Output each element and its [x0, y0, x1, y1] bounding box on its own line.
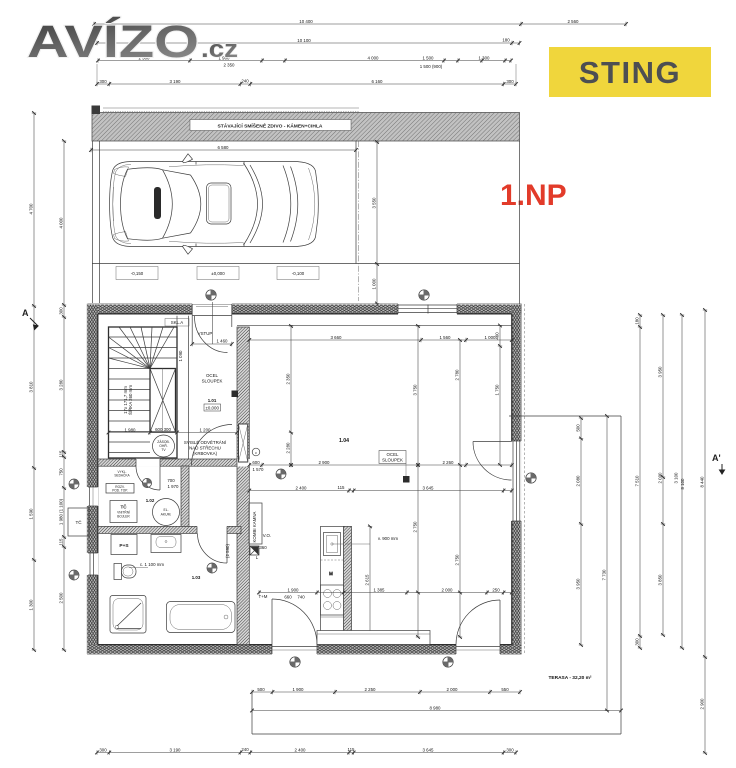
- svg-text:1 590: 1 590: [29, 508, 34, 520]
- svg-text:2 560: 2 560: [568, 19, 580, 24]
- svg-text:TERASA - 32,20 m²: TERASA - 32,20 m²: [548, 675, 591, 681]
- svg-text:SVISLÉ ODVĚTRÁNÍ: SVISLÉ ODVĚTRÁNÍ: [184, 440, 227, 445]
- svg-text:1 300: 1 300: [29, 599, 34, 611]
- svg-text:3 190: 3 190: [170, 747, 182, 752]
- svg-text:POD. TOP.: POD. TOP.: [112, 489, 128, 493]
- svg-text:V.O.: V.O.: [263, 533, 271, 538]
- svg-text:2 400: 2 400: [295, 747, 307, 752]
- svg-text:300: 300: [506, 79, 514, 84]
- svg-text:±0,000: ±0,000: [211, 271, 225, 276]
- svg-text:M: M: [329, 571, 333, 576]
- svg-text:1.NP: 1.NP: [500, 179, 567, 212]
- svg-text:ŠÍŘKA 260 mm: ŠÍŘKA 260 mm: [128, 385, 133, 415]
- svg-text:TV: TV: [161, 448, 166, 452]
- svg-text:-0,150: -0,150: [131, 271, 144, 276]
- svg-text:2 900: 2 900: [319, 460, 331, 465]
- svg-text:3 190: 3 190: [170, 79, 182, 84]
- svg-text:3 810: 3 810: [29, 381, 34, 393]
- svg-text:600 300: 600 300: [155, 427, 171, 432]
- svg-text:6 580: 6 580: [218, 145, 230, 150]
- svg-text:2 250: 2 250: [365, 687, 377, 692]
- svg-text:550: 550: [501, 687, 509, 692]
- svg-text:500: 500: [575, 424, 580, 432]
- svg-text:1 980: 1 980: [125, 427, 137, 432]
- svg-text:SLOUPEK: SLOUPEK: [202, 379, 223, 384]
- svg-text:1 460: 1 460: [217, 338, 229, 343]
- svg-text:1 300: 1 300: [479, 55, 491, 60]
- svg-text:600: 600: [252, 460, 260, 465]
- svg-text:1 970: 1 970: [168, 484, 180, 489]
- svg-text:1 750: 1 750: [494, 384, 499, 396]
- svg-text:3 750: 3 750: [412, 384, 417, 396]
- svg-text:1 090: 1 090: [178, 350, 183, 362]
- svg-text:8 980: 8 980: [430, 705, 442, 710]
- svg-text:SEDAČKA: SEDAČKA: [114, 473, 130, 478]
- svg-text:P+S: P+S: [119, 543, 129, 549]
- svg-text:2 400: 2 400: [296, 485, 308, 490]
- svg-text:10 400: 10 400: [299, 19, 313, 24]
- svg-text:240: 240: [241, 79, 249, 84]
- svg-text:460: 460: [494, 332, 499, 340]
- svg-text:1 900: 1 900: [293, 687, 305, 692]
- svg-text:700: 700: [167, 478, 175, 483]
- svg-text:2 000: 2 000: [442, 587, 454, 592]
- svg-text:TČ: TČ: [120, 504, 127, 510]
- svg-text:1 000: 1 000: [372, 278, 377, 290]
- svg-text:c: c: [255, 451, 257, 455]
- svg-text:2 260: 2 260: [443, 460, 455, 465]
- svg-text:OCEL: OCEL: [387, 452, 400, 457]
- svg-text:8 440: 8 440: [699, 476, 704, 488]
- svg-text:±0,000: ±0,000: [205, 405, 219, 410]
- svg-text:1 500: 1 500: [423, 55, 435, 60]
- svg-text:3 550: 3 550: [372, 197, 377, 209]
- svg-text:TČ: TČ: [75, 519, 82, 525]
- svg-text:NAD STŘECHU: NAD STŘECHU: [189, 446, 221, 451]
- svg-text:1.02: 1.02: [146, 498, 155, 503]
- svg-text:7 510: 7 510: [634, 475, 639, 487]
- svg-text:1 900: 1 900: [288, 587, 300, 592]
- svg-text:1 500 (900): 1 500 (900): [420, 64, 443, 69]
- svg-text:OCEL: OCEL: [206, 373, 219, 378]
- svg-text:3 660: 3 660: [331, 335, 343, 340]
- svg-text:3 100: 3 100: [674, 472, 679, 484]
- svg-text:115: 115: [348, 747, 356, 752]
- svg-text:740: 740: [297, 595, 305, 600]
- svg-text:3 280: 3 280: [59, 379, 64, 391]
- svg-text:AKUM.: AKUM.: [161, 513, 172, 517]
- svg-text:250: 250: [492, 587, 500, 592]
- svg-text:180: 180: [634, 317, 639, 325]
- svg-text:750: 750: [59, 468, 64, 476]
- svg-text:2 080: 2 080: [575, 475, 580, 487]
- svg-text:SKL.A: SKL.A: [171, 320, 184, 325]
- svg-text:1.01: 1.01: [208, 398, 217, 403]
- svg-text:240: 240: [241, 747, 249, 752]
- svg-text:4 000: 4 000: [368, 55, 380, 60]
- svg-text:4 700: 4 700: [29, 203, 34, 215]
- svg-text:3 950: 3 950: [575, 578, 580, 590]
- svg-text:300: 300: [634, 638, 639, 646]
- svg-text:(2 590): (2 590): [225, 544, 230, 558]
- svg-text:660: 660: [284, 595, 292, 600]
- svg-text:1 570: 1 570: [253, 467, 265, 472]
- svg-text:300: 300: [59, 307, 64, 315]
- svg-text:300: 300: [506, 747, 514, 752]
- svg-text:2 090: 2 090: [657, 472, 662, 484]
- svg-text:3 645: 3 645: [423, 747, 435, 752]
- svg-text:2 350: 2 350: [224, 63, 236, 68]
- svg-text:c. 1 100 mm: c. 1 100 mm: [140, 562, 164, 567]
- svg-text:2 750: 2 750: [454, 554, 459, 566]
- svg-text:A: A: [22, 308, 29, 318]
- svg-text:v. 900 mm: v. 900 mm: [378, 536, 399, 541]
- svg-text:2 750: 2 750: [412, 521, 417, 533]
- svg-text:115: 115: [338, 485, 346, 490]
- svg-text:2 780: 2 780: [454, 369, 459, 381]
- svg-text:2 350: 2 350: [286, 373, 291, 385]
- svg-text:360: 360: [259, 545, 267, 550]
- svg-text:1.04: 1.04: [339, 438, 349, 444]
- svg-text:T+M: T+M: [259, 594, 268, 599]
- svg-text:4 000: 4 000: [59, 217, 64, 229]
- svg-text:300: 300: [99, 747, 107, 752]
- svg-text:6 160: 6 160: [372, 79, 384, 84]
- svg-text:AVÍZO: AVÍZO: [27, 16, 199, 67]
- svg-text:7 730: 7 730: [601, 569, 606, 581]
- svg-text:115: 115: [59, 450, 64, 458]
- svg-text:EL.: EL.: [163, 508, 168, 512]
- svg-text:2 000: 2 000: [447, 687, 459, 692]
- svg-text:1 200: 1 200: [200, 427, 212, 432]
- svg-text:3 645: 3 645: [423, 485, 435, 490]
- svg-text:1 980 (1 100): 1 980 (1 100): [59, 498, 64, 525]
- svg-text:2 615: 2 615: [364, 574, 369, 586]
- svg-text:KOMBI KAMNA: KOMBI KAMNA: [252, 511, 257, 542]
- svg-text:10 100: 10 100: [297, 38, 311, 43]
- svg-text:2 900: 2 900: [699, 698, 704, 710]
- svg-text:SLOUPEK: SLOUPEK: [382, 458, 403, 463]
- svg-text:8 100: 8 100: [680, 478, 685, 490]
- svg-text:-0,100: -0,100: [292, 271, 305, 276]
- svg-text:2 280: 2 280: [286, 442, 291, 454]
- svg-text:(KRBOVKA): (KRBOVKA): [193, 451, 218, 456]
- svg-text:3 850: 3 850: [657, 574, 662, 586]
- svg-text:3 950: 3 950: [657, 366, 662, 378]
- svg-text:500: 500: [257, 687, 265, 692]
- svg-text:1.03: 1.03: [192, 575, 201, 580]
- svg-text:STING: STING: [579, 55, 681, 90]
- svg-text:2 500: 2 500: [59, 592, 64, 604]
- svg-text:300: 300: [99, 79, 107, 84]
- svg-text:115: 115: [59, 538, 64, 546]
- svg-text:BOJLER: BOJLER: [117, 515, 130, 519]
- svg-text:1 560: 1 560: [440, 335, 452, 340]
- svg-text:180: 180: [502, 38, 510, 43]
- svg-text:1 385: 1 385: [374, 587, 386, 592]
- svg-text:A': A': [712, 453, 721, 463]
- svg-text:VSTUP: VSTUP: [198, 331, 213, 336]
- svg-text:.cz: .cz: [201, 36, 238, 63]
